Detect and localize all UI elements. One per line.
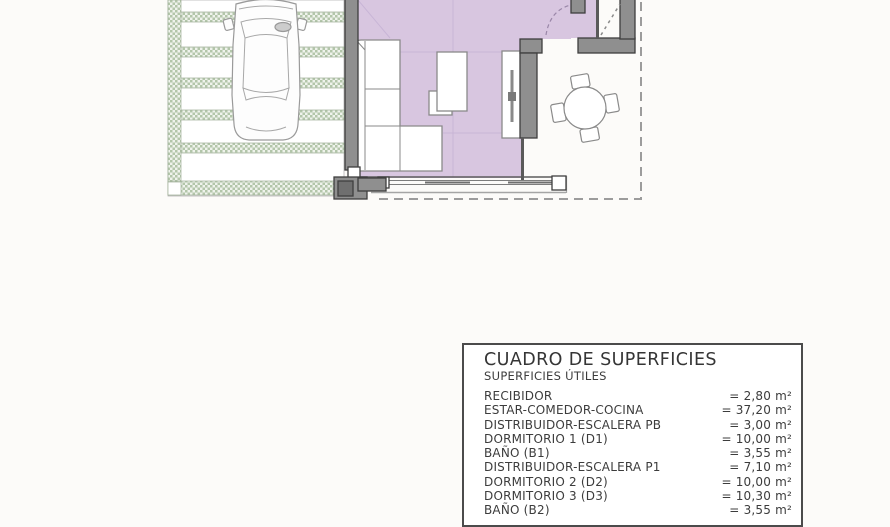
surface-row: DISTRIBUIDOR-ESCALERA PB= 3,00 m² [484,418,792,432]
parked-car [223,0,307,140]
surface-label: BAÑO (B2) [484,503,550,517]
surface-value: = 37,20 m² [721,403,792,417]
car-detail [275,23,291,32]
surfaces-subtitle: SUPERFICIES ÚTILES [484,370,792,383]
surface-value: = 3,00 m² [729,418,792,432]
surface-label: BAÑO (B1) [484,446,550,460]
tv-wall-head [520,39,542,53]
dining-table [564,87,606,129]
surface-value: = 7,10 m² [729,460,792,474]
surface-label: DORMITORIO 2 (D2) [484,475,608,489]
surface-row: DORMITORIO 2 (D2)= 10,00 m² [484,475,792,489]
surface-row: ESTAR-COMEDOR-COCINA= 37,20 m² [484,403,792,417]
surface-label: DORMITORIO 3 (D3) [484,489,608,503]
surface-row: BAÑO (B1)= 3,55 m² [484,446,792,460]
window-jamb [521,138,524,180]
tv-wall [520,53,537,138]
entry-porch-wall [578,38,635,53]
window-wall [371,176,567,193]
surface-row: RECIBIDOR= 2,80 m² [484,389,792,403]
surface-value: = 3,55 m² [729,446,792,460]
entry-porch-wall [620,0,635,39]
surface-row: BAÑO (B2)= 3,55 m² [484,503,792,517]
surfaces-table: CUADRO DE SUPERFICIES SUPERFICIES ÚTILES… [462,343,803,527]
exterior-step-bar [358,178,386,191]
surface-value: = 10,00 m² [721,475,792,489]
tv-unit [502,51,521,138]
surface-value: = 2,80 m² [729,389,792,403]
dining-set [550,73,619,142]
surface-value: = 10,00 m² [721,432,792,446]
carport-wall [345,0,358,170]
surface-label: DISTRIBUIDOR-ESCALERA PB [484,418,661,432]
surface-value: = 3,55 m² [729,503,792,517]
car-body [232,0,300,140]
surface-value: = 10,30 m² [721,489,792,503]
carport [168,0,344,196]
surface-row: DORMITORIO 1 (D1)= 10,00 m² [484,432,792,446]
car-mirror-left [223,18,234,31]
surface-row: DISTRIBUIDOR-ESCALERA P1= 7,10 m² [484,460,792,474]
entry-stairs-icon [601,4,620,35]
surfaces-title: CUADRO DE SUPERFICIES [484,350,792,370]
surfaces-rows: RECIBIDOR= 2,80 m²ESTAR-COMEDOR-COCINA= … [484,389,792,518]
surface-label: DORMITORIO 1 (D1) [484,432,608,446]
surface-label: DISTRIBUIDOR-ESCALERA P1 [484,460,661,474]
surface-label: ESTAR-COMEDOR-COCINA [484,403,644,417]
stair-wall [596,0,599,38]
window-post [552,176,566,190]
surface-label: RECIBIDOR [484,389,552,403]
surface-row: DORMITORIO 3 (D3)= 10,30 m² [484,489,792,503]
door-jamb-stub [571,0,585,13]
